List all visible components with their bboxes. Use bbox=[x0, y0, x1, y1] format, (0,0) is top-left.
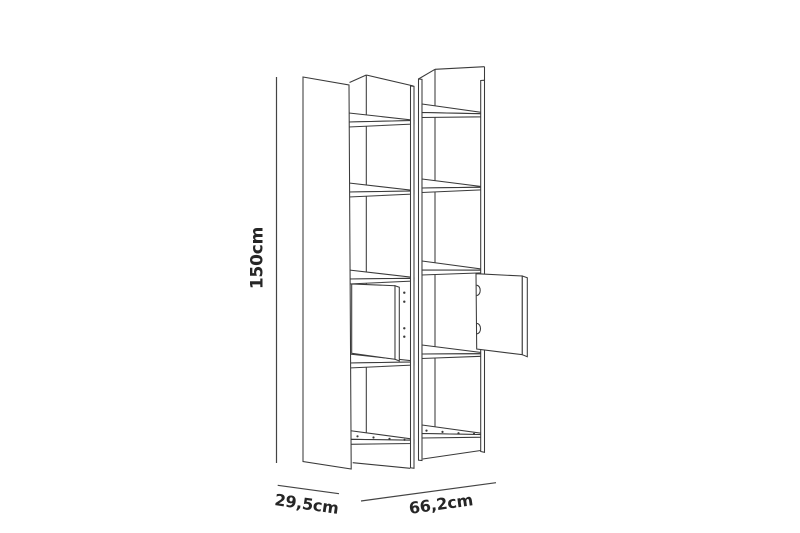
width-dimension-label: 66,2cm bbox=[408, 490, 474, 518]
height-dimension: 150cm bbox=[248, 77, 277, 463]
right-side-panel bbox=[481, 67, 485, 453]
bookcase-line-drawing: 150cm 29,5cm 66,2cm bbox=[0, 0, 800, 533]
depth-dimension-label: 29,5cm bbox=[273, 490, 339, 518]
width-dimension: 66,2cm bbox=[361, 483, 496, 518]
right-door bbox=[476, 274, 527, 357]
left-side-panel bbox=[303, 77, 351, 469]
depth-dimension: 29,5cm bbox=[273, 485, 339, 518]
left-hinge-screw-holes bbox=[403, 292, 405, 338]
left-door bbox=[352, 284, 400, 361]
right-column-shelves bbox=[422, 104, 484, 459]
diagram-canvas: 150cm 29,5cm 66,2cm bbox=[0, 0, 800, 533]
height-dimension-label: 150cm bbox=[248, 227, 268, 289]
middle-divider-panel bbox=[411, 86, 415, 468]
